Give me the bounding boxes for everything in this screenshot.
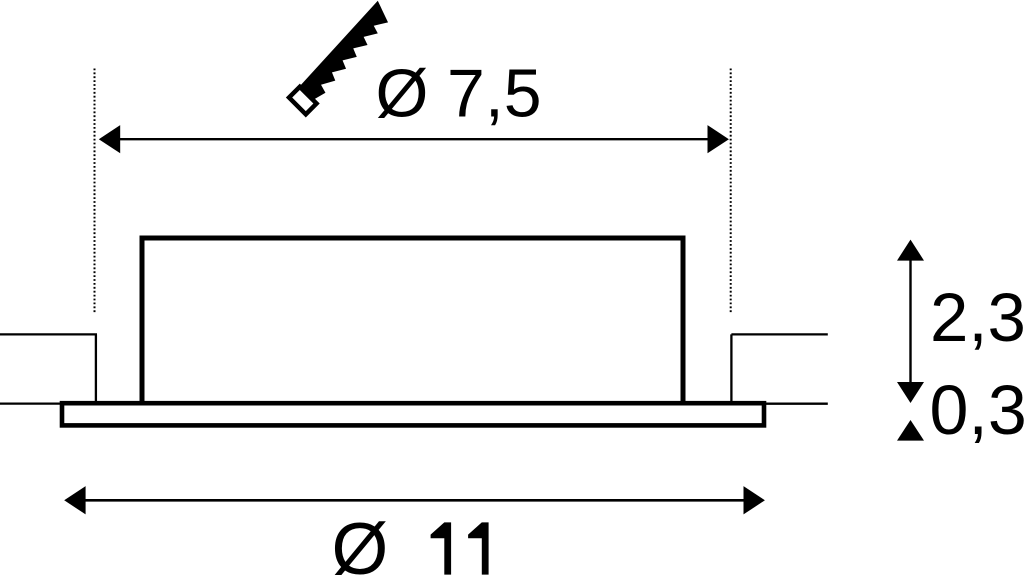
svg-text:Ø: Ø [376, 56, 429, 132]
svg-text:2,3: 2,3 [930, 279, 1024, 356]
svg-text:0,3: 0,3 [930, 371, 1024, 449]
svg-text:Ø: Ø [332, 509, 389, 575]
svg-text:7,5: 7,5 [447, 56, 542, 132]
